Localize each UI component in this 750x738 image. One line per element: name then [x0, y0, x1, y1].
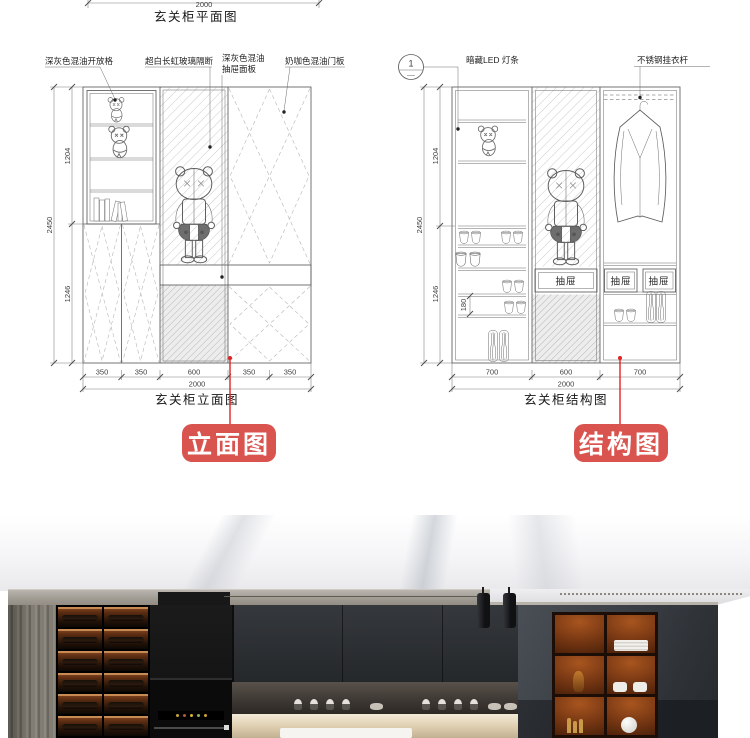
wine-glass: [470, 699, 478, 710]
marble-ceiling: [0, 515, 750, 591]
left-margin: [0, 605, 8, 738]
shelf-cell: [607, 615, 656, 653]
bottle: [573, 721, 577, 733]
wine-glass: [422, 699, 430, 710]
struct-dim-w1: 700: [486, 368, 499, 377]
cabinet-seam: [442, 605, 443, 682]
wine-rack-cell: [104, 673, 148, 693]
oven-handle: [154, 727, 228, 729]
callout-drawer-1: 深灰色混油: [222, 53, 265, 63]
wine-cabinet: [56, 605, 150, 738]
elev-dim-w2: 350: [135, 368, 148, 377]
elev-dim-w1: 350: [96, 368, 109, 377]
pendant-light: [477, 593, 490, 628]
toy-figurine: [109, 126, 130, 158]
wine-rack-cell: [58, 629, 102, 649]
elevation-drawing: 2450 1204 1246 350 350 600 350 350 2000 …: [45, 53, 345, 424]
built-in-oven: [150, 678, 232, 738]
svg-text:抽屉: 抽屉: [610, 276, 631, 288]
wine-glass: [310, 699, 318, 710]
structure-tag: 结构图: [574, 424, 668, 462]
wine-rack-cell: [58, 651, 102, 671]
elev-dim-total-width: 2000: [189, 380, 206, 389]
bottle: [567, 718, 571, 733]
wine-rack-cell: [58, 716, 102, 736]
struct-dim-shelf: 180: [459, 299, 468, 312]
oven-button: [224, 725, 229, 730]
wine-rack-cell: [58, 607, 102, 627]
wine-rack-cell: [104, 651, 148, 671]
shelf-cell: [607, 656, 656, 694]
wine-rack-cell: [104, 694, 148, 714]
callout-led: 暗藏LED 灯条: [466, 55, 519, 65]
pendant-light: [503, 593, 516, 628]
glass-display-shelf: [232, 682, 518, 717]
wine-glass: [438, 699, 446, 710]
struct-dim-w2: 600: [560, 368, 573, 377]
elevation-caption: 玄关柜立面图: [155, 392, 239, 407]
kitchen-photo: [0, 515, 750, 738]
section-marker: 1: [399, 55, 424, 80]
right-margin: [718, 605, 750, 738]
callout-door: 奶咖色混油门板: [285, 56, 345, 66]
svg-text:抽屉: 抽屉: [555, 276, 576, 288]
struct-dim-lower-height: 1246: [431, 286, 440, 303]
books: [94, 198, 127, 222]
structure-red-leader: [618, 356, 622, 424]
svg-text:抽屉: 抽屉: [648, 276, 669, 288]
shelf-cell: [607, 697, 656, 735]
white-bowl: [633, 682, 647, 692]
shelf-cell: [555, 697, 604, 735]
white-bowl: [613, 682, 627, 692]
wine-rack-cell: [104, 607, 148, 627]
callout-rod: 不锈钢挂衣杆: [637, 55, 689, 65]
counter-object: [280, 728, 412, 738]
vent-dotted-strip: [560, 593, 742, 595]
elev-dim-upper-height: 1204: [63, 148, 72, 165]
wine-glass: [326, 699, 334, 710]
callout-open-grid: 深灰色混油开放格: [45, 56, 114, 66]
elev-dim-w5: 350: [284, 368, 297, 377]
callout-drawer-2: 抽屉面板: [222, 64, 257, 74]
range-hood-top: [158, 592, 230, 606]
wine-rack-cell: [58, 673, 102, 693]
oven-display: [158, 711, 224, 720]
struct-dim-total-height: 2450: [415, 217, 424, 234]
bowl: [504, 703, 517, 710]
shelf-cell: [555, 615, 604, 653]
wine-glass: [454, 699, 462, 710]
struct-dim-total-width: 2000: [558, 380, 575, 389]
toy-figurine: [478, 126, 497, 156]
elev-dim-total-height: 2450: [45, 217, 54, 234]
drawer-front-right-2: 抽屉: [643, 269, 676, 292]
white-sphere: [621, 717, 637, 733]
cabinet-seam: [342, 605, 343, 682]
structure-drawing: 抽屉 抽屉 抽屉 2450 1204 1246 180 700 600 700 …: [399, 55, 711, 425]
wine-glass: [342, 699, 350, 710]
struct-dim-upper-height: 1204: [431, 148, 440, 165]
struct-dim-w3: 700: [634, 368, 647, 377]
wine-rack-cell: [104, 629, 148, 649]
cabinet-row: [0, 605, 750, 738]
display-shelf-unit: [552, 612, 658, 738]
elev-dim-w3: 600: [188, 368, 201, 377]
page: 2000 玄关柜平面图 2450 1204 1246: [0, 0, 750, 738]
drawer-front-mid: 抽屉: [535, 269, 597, 292]
bowl: [488, 703, 501, 710]
plan-view: 2000 玄关柜平面图: [85, 0, 322, 24]
shelf-cell: [555, 656, 604, 694]
bowl: [370, 703, 383, 710]
fluted-panel: [8, 605, 56, 738]
backsplash-light: [232, 714, 518, 738]
wine-rack-cell: [104, 716, 148, 736]
bottle: [579, 719, 583, 733]
drawer-front-right-1: 抽屉: [605, 269, 638, 292]
oven-tower: [150, 605, 232, 738]
elevation-tag: 立面图: [182, 424, 276, 462]
elev-dim-lower-height: 1246: [63, 286, 72, 303]
oven-indicator-lights: [176, 714, 179, 717]
wine-glass: [294, 699, 302, 710]
structure-caption: 玄关柜结构图: [524, 392, 608, 407]
plan-caption: 玄关柜平面图: [154, 9, 238, 24]
wine-rack-cell: [58, 694, 102, 714]
dish-stack: [614, 640, 648, 651]
svg-text:1: 1: [408, 59, 413, 69]
plan-width-dim: 2000: [196, 0, 213, 9]
bronze-sculpture: [573, 671, 584, 692]
callout-glass: 超白长虹玻璃隔断: [145, 56, 214, 66]
soffit-groove: [224, 596, 490, 597]
elev-dim-w4: 350: [243, 368, 256, 377]
elevation-red-leader: [228, 356, 232, 424]
